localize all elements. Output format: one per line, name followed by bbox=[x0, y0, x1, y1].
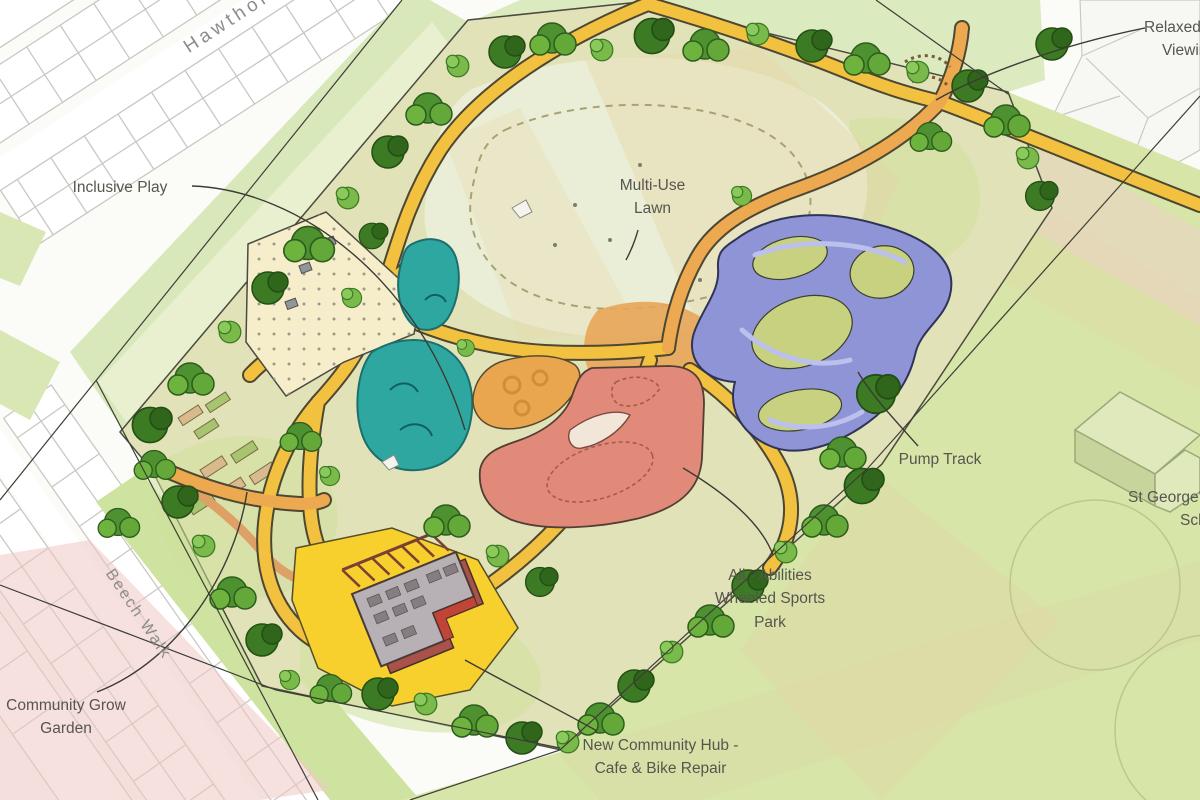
label-multi-use-lawn: Multi-Use Lawn bbox=[585, 174, 720, 221]
label-relaxed-viewing: Relaxed Viewing bbox=[1144, 16, 1200, 63]
label-new-community-hub: New Community Hub - Cafe & Bike Repair bbox=[558, 734, 763, 781]
masterplan-drawing bbox=[0, 0, 1200, 800]
label-community-grow-garden: Community Grow Garden bbox=[0, 694, 136, 741]
label-all-abilities-wheeled-sports-park: All - Abilities Wheeled Sports Park bbox=[690, 564, 850, 634]
label-inclusive-play: Inclusive Play bbox=[50, 176, 190, 199]
label-pump-track: Pump Track bbox=[860, 448, 1020, 471]
park-masterplan-illustration: Hawthorn Walk Beech Walk Inclusive Play … bbox=[0, 0, 1200, 800]
label-st-georges-school: St George's School bbox=[1128, 486, 1200, 533]
